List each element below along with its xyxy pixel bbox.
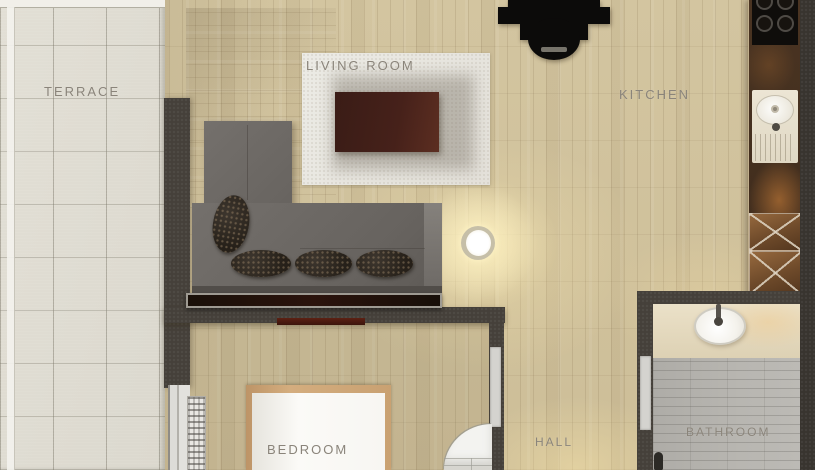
bedroom-door-jamb: [490, 347, 501, 427]
burner-icon: [777, 0, 794, 10]
kitchen-cabinet: [749, 213, 802, 251]
floor-plan: TERRACE LIVING ROOM BEDROOM HALL: [0, 0, 815, 470]
door-seam: [444, 458, 492, 459]
terrace-label: TERRACE: [44, 84, 120, 99]
throw-pillow: [295, 250, 352, 277]
armchair: [498, 0, 610, 62]
bed-duvet: [252, 393, 385, 470]
burner-icon: [756, 0, 773, 10]
coffee-table: [335, 92, 439, 152]
bathroom-top-wall: [637, 291, 815, 304]
armchair-detail: [541, 47, 567, 52]
terrace-area: [0, 0, 165, 470]
sofa-seam: [247, 125, 248, 200]
throw-pillow: [356, 250, 413, 277]
throw-pillow: [231, 250, 291, 277]
tv-console: [186, 293, 442, 308]
radiator: [187, 396, 206, 470]
kitchen-cabinet: [749, 251, 802, 295]
toilet-brush: [654, 452, 663, 470]
terrace-edge-strip: [0, 0, 165, 8]
armchair-cushion: [528, 18, 580, 60]
hall-label: HALL: [535, 435, 573, 449]
bathroom-area: [653, 304, 800, 470]
sink-faucet: [772, 123, 780, 131]
terrace-sliding-door: [164, 0, 190, 99]
cooktop: [752, 0, 798, 45]
burner-icon: [777, 15, 794, 32]
bathroom-label: BATHROOM: [686, 425, 770, 439]
right-wall: [800, 0, 815, 470]
bathroom-door-jamb: [640, 356, 651, 430]
door-seam: [444, 465, 492, 466]
kitchen-counter: [748, 0, 802, 295]
kitchen-label: KITCHEN: [619, 87, 690, 102]
kitchen-sink: [752, 90, 798, 163]
sofa-armrest: [424, 203, 442, 289]
area-rug: LIVING ROOM: [302, 53, 490, 185]
faucet-knob: [714, 317, 723, 326]
sink-drainer: [755, 134, 795, 161]
bathroom-floor: [653, 358, 800, 470]
sofa-base-shadow: [192, 286, 442, 293]
door-seam: [471, 458, 472, 470]
living-room-label: LIVING ROOM: [306, 58, 415, 73]
ceiling-light-bulb: [466, 230, 491, 256]
bed: [246, 385, 391, 470]
bedroom-wall-tv: [277, 318, 365, 325]
bedroom-label: BEDROOM: [267, 442, 348, 457]
sofa-seam: [300, 248, 425, 249]
burner-icon: [756, 15, 773, 32]
left-wall: [164, 98, 190, 388]
sink-drain: [771, 105, 779, 113]
terrace-rail: [7, 7, 15, 470]
